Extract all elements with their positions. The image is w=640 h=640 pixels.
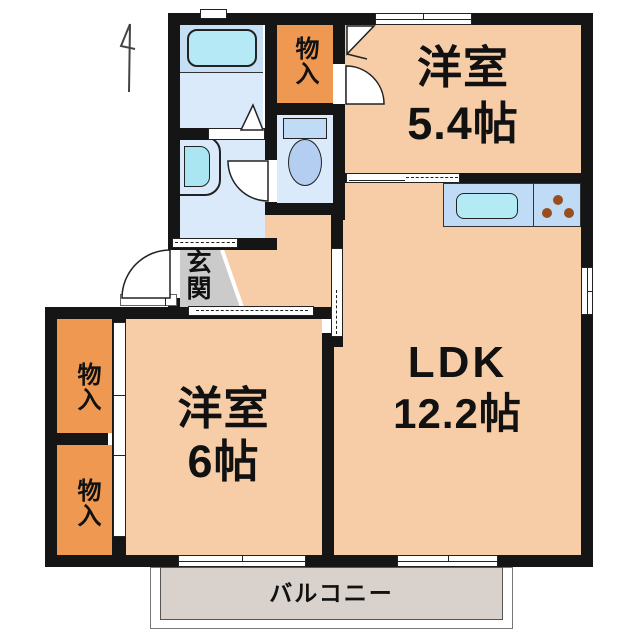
ldk-name: LDK xyxy=(334,340,581,386)
closet-left-upper-label: 物入 xyxy=(74,362,98,412)
toilet-door-arc xyxy=(228,161,268,201)
room-large-area: 6帖 xyxy=(125,438,322,485)
entrance-door-arc xyxy=(122,250,170,298)
north-arrow-icon xyxy=(121,24,135,92)
room-small-name: 洋室 xyxy=(345,44,581,91)
ldk-area: 12.2帖 xyxy=(334,392,581,436)
balcony-label: バルコニー xyxy=(160,581,503,605)
closet-left-lower-label: 物入 xyxy=(74,478,98,528)
bath-folding-door-icon xyxy=(241,105,263,130)
closet-upper-right-label: 物入 xyxy=(292,36,316,86)
door-symbols-layer xyxy=(0,0,640,640)
room-small-area: 5.4帖 xyxy=(345,100,581,147)
entrance-label: 玄関 xyxy=(184,249,209,301)
floor-plan: 洋室 5.4帖 LDK 12.2帖 洋室 6帖 バルコニー 玄関 物入 物入 物… xyxy=(0,0,640,640)
room-large-name: 洋室 xyxy=(125,385,322,432)
